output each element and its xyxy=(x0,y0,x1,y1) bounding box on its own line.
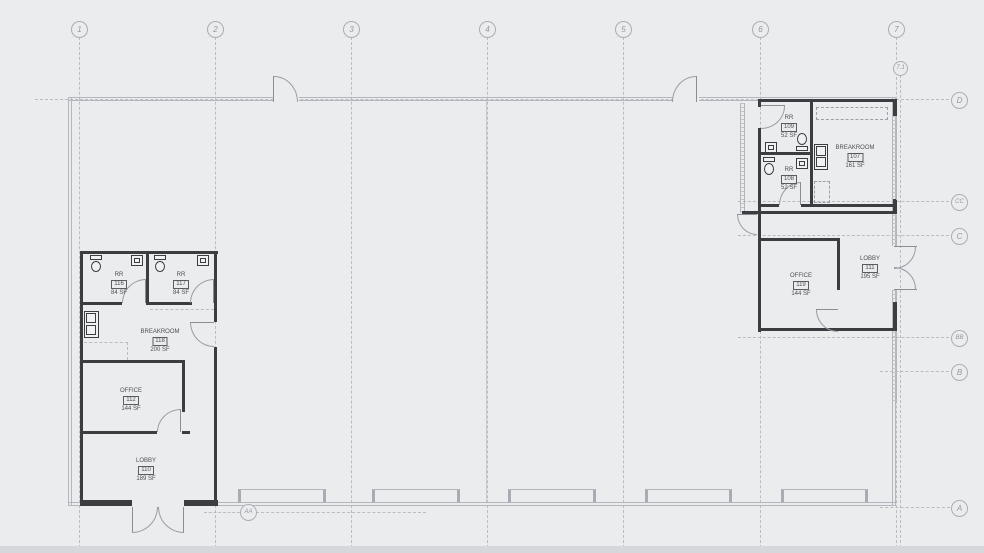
room-number: 111 xyxy=(862,264,877,273)
door-swing-arc xyxy=(737,214,757,235)
wall xyxy=(893,302,897,330)
room-number: 119 xyxy=(793,281,809,290)
grid-bubble-row: D xyxy=(951,92,968,109)
grid-bubble-col: 2 xyxy=(207,21,224,38)
room-number: 109 xyxy=(781,123,797,132)
room-area: 161 SF xyxy=(835,163,874,170)
room-number: 116 xyxy=(111,280,127,289)
room-name: BREAKROOM xyxy=(140,329,179,336)
counter-dashed xyxy=(84,342,128,343)
wall xyxy=(146,251,149,305)
toilet-tank-fixture xyxy=(763,157,775,162)
sink-basin xyxy=(86,313,96,323)
wall xyxy=(80,251,83,506)
floor-plan-canvas: 1 2 3 4 5 6 7 7.1 D CC C BB B A AA RR 11… xyxy=(0,0,984,553)
door-leaf xyxy=(213,279,214,303)
grid-line-row-AA xyxy=(256,512,426,513)
room-number: 108 xyxy=(781,175,797,184)
sink-basin xyxy=(799,161,805,166)
door-swing-arc xyxy=(132,507,158,533)
wall xyxy=(184,500,218,506)
door-swing-arc xyxy=(158,507,184,533)
sink-basin xyxy=(816,146,826,156)
room-name: RR xyxy=(781,115,797,122)
room-number: 110 xyxy=(138,466,154,475)
door-swing-arc xyxy=(157,409,181,432)
room-label-lobby-111: LOBBY 111 195 SF xyxy=(860,256,880,281)
room-label-office-119: OFFICE 119 144 SF xyxy=(790,273,812,298)
wall xyxy=(758,128,761,332)
room-label-lobby-110: LOBBY 110 189 SF xyxy=(136,458,156,483)
door-opening xyxy=(132,500,184,507)
refrigerator-dashed xyxy=(814,181,830,203)
room-label-breakroom-107: BREAKROOM 107 161 SF xyxy=(835,145,874,170)
wall xyxy=(893,99,897,116)
toilet-fixture xyxy=(797,133,807,145)
grid-bubble-row: C xyxy=(951,228,968,245)
corridor-wall xyxy=(740,103,745,213)
grid-line-row-CC xyxy=(738,201,949,202)
grid-line-col-3 xyxy=(351,37,352,548)
room-label-rr-109: RR 109 52 SF xyxy=(781,115,797,140)
door-swing-arc xyxy=(274,76,298,102)
window-mullion xyxy=(892,290,897,302)
door-leaf xyxy=(800,182,801,205)
door-leaf xyxy=(816,309,838,310)
window-mullion xyxy=(892,332,897,402)
counter-dashed xyxy=(127,342,128,360)
storefront-window xyxy=(781,489,868,503)
room-name: LOBBY xyxy=(136,458,156,465)
door-swing-arc xyxy=(672,76,696,102)
grid-bubble-col: 7.1 xyxy=(893,61,908,76)
toilet-fixture xyxy=(155,261,165,272)
room-number: 118 xyxy=(152,337,168,346)
sink-basin xyxy=(768,145,774,150)
room-label-breakroom-118: BREAKROOM 118 200 SF xyxy=(140,329,179,354)
grid-line-row-AA xyxy=(204,512,240,513)
room-number: 112 xyxy=(123,396,139,405)
wall xyxy=(182,360,185,412)
grid-line-col-5 xyxy=(623,37,624,548)
room-name: RR xyxy=(781,167,797,174)
wall xyxy=(182,431,190,434)
window-mullion xyxy=(892,215,897,246)
storefront-window xyxy=(372,489,460,503)
wall xyxy=(80,302,122,305)
room-area: 84 SF xyxy=(173,290,189,297)
wall xyxy=(810,99,813,207)
door-leaf xyxy=(180,409,181,432)
sink-basin xyxy=(134,258,140,263)
door-leaf xyxy=(145,279,146,303)
storefront-window xyxy=(238,489,326,503)
room-label-rr-117: RR 117 84 SF xyxy=(173,272,189,297)
door-swing-arc xyxy=(190,322,214,347)
door-leaf xyxy=(894,289,917,290)
wall xyxy=(80,251,218,254)
grid-line-col-7-1 xyxy=(900,75,901,548)
room-name: OFFICE xyxy=(790,273,812,280)
wall xyxy=(742,211,897,214)
grid-bubble-row: CC xyxy=(951,194,968,211)
storefront-window xyxy=(645,489,732,503)
door-leaf xyxy=(737,214,757,215)
wall xyxy=(758,99,897,102)
grid-bubble-row: BB xyxy=(951,330,968,347)
toilet-tank-fixture xyxy=(796,146,808,151)
toilet-fixture xyxy=(764,163,774,175)
cabinet-dashed xyxy=(816,107,888,120)
room-area: 144 SF xyxy=(790,291,812,298)
storefront-window xyxy=(508,489,596,503)
room-name: LOBBY xyxy=(860,256,880,263)
door-swing-arc xyxy=(894,267,916,289)
door-swing-arc xyxy=(894,247,916,269)
wall xyxy=(893,199,897,213)
door-leaf xyxy=(696,76,697,102)
grid-line-row-A xyxy=(880,507,950,508)
grid-bubble-col: 4 xyxy=(479,21,496,38)
room-label-rr-116: RR 116 84 SF xyxy=(111,272,127,297)
demising-wall xyxy=(486,101,487,502)
grid-line-row-B xyxy=(880,371,949,372)
wall xyxy=(801,204,897,207)
room-area: 195 SF xyxy=(860,274,880,281)
room-name: OFFICE xyxy=(120,388,142,395)
room-area: 189 SF xyxy=(136,476,156,483)
sink-basin xyxy=(816,157,826,167)
building-west-wall xyxy=(68,97,72,506)
door-leaf xyxy=(190,322,214,323)
wall xyxy=(80,360,185,363)
grid-bubble-col: 1 xyxy=(71,21,88,38)
cabinet-dashed xyxy=(150,309,214,310)
wall xyxy=(214,251,217,322)
grid-bubble-col: 7 xyxy=(888,21,905,38)
room-area: 200 SF xyxy=(140,347,179,354)
wall xyxy=(758,204,779,207)
wall xyxy=(837,238,840,290)
toilet-tank-fixture xyxy=(154,255,166,260)
room-area: 84 SF xyxy=(111,290,127,297)
wall xyxy=(146,302,192,305)
room-name: RR xyxy=(111,272,127,279)
room-name: BREAKROOM xyxy=(835,145,874,152)
wall xyxy=(758,238,840,241)
room-area: 52 SF xyxy=(781,133,797,140)
grid-bubble-row: B xyxy=(951,364,968,381)
grid-bubble-col: 3 xyxy=(343,21,360,38)
room-label-rr-108: RR 108 52 SF xyxy=(781,167,797,192)
grid-bubble-row: A xyxy=(951,500,968,517)
sheet-edge-band xyxy=(0,546,984,553)
room-name: RR xyxy=(173,272,189,279)
sink-basin xyxy=(86,325,96,335)
room-number: 117 xyxy=(173,280,189,289)
window-mullion xyxy=(892,116,897,200)
room-number: 107 xyxy=(847,153,863,162)
grid-bubble-col: 6 xyxy=(752,21,769,38)
wall xyxy=(214,347,217,506)
grid-bubble-row: AA xyxy=(240,504,257,521)
room-area: 144 SF xyxy=(120,406,142,413)
toilet-fixture xyxy=(91,261,101,272)
room-area: 52 SF xyxy=(781,185,797,192)
door-swing-arc xyxy=(190,279,214,303)
toilet-tank-fixture xyxy=(90,255,102,260)
grid-line-row-BB xyxy=(738,337,949,338)
grid-line-row-C xyxy=(738,235,949,236)
sink-basin xyxy=(200,258,206,263)
grid-line-col-4 xyxy=(487,37,488,548)
grid-bubble-col: 5 xyxy=(615,21,632,38)
wall xyxy=(80,500,132,506)
room-label-office-112: OFFICE 112 144 SF xyxy=(120,388,142,413)
wall xyxy=(80,431,157,434)
